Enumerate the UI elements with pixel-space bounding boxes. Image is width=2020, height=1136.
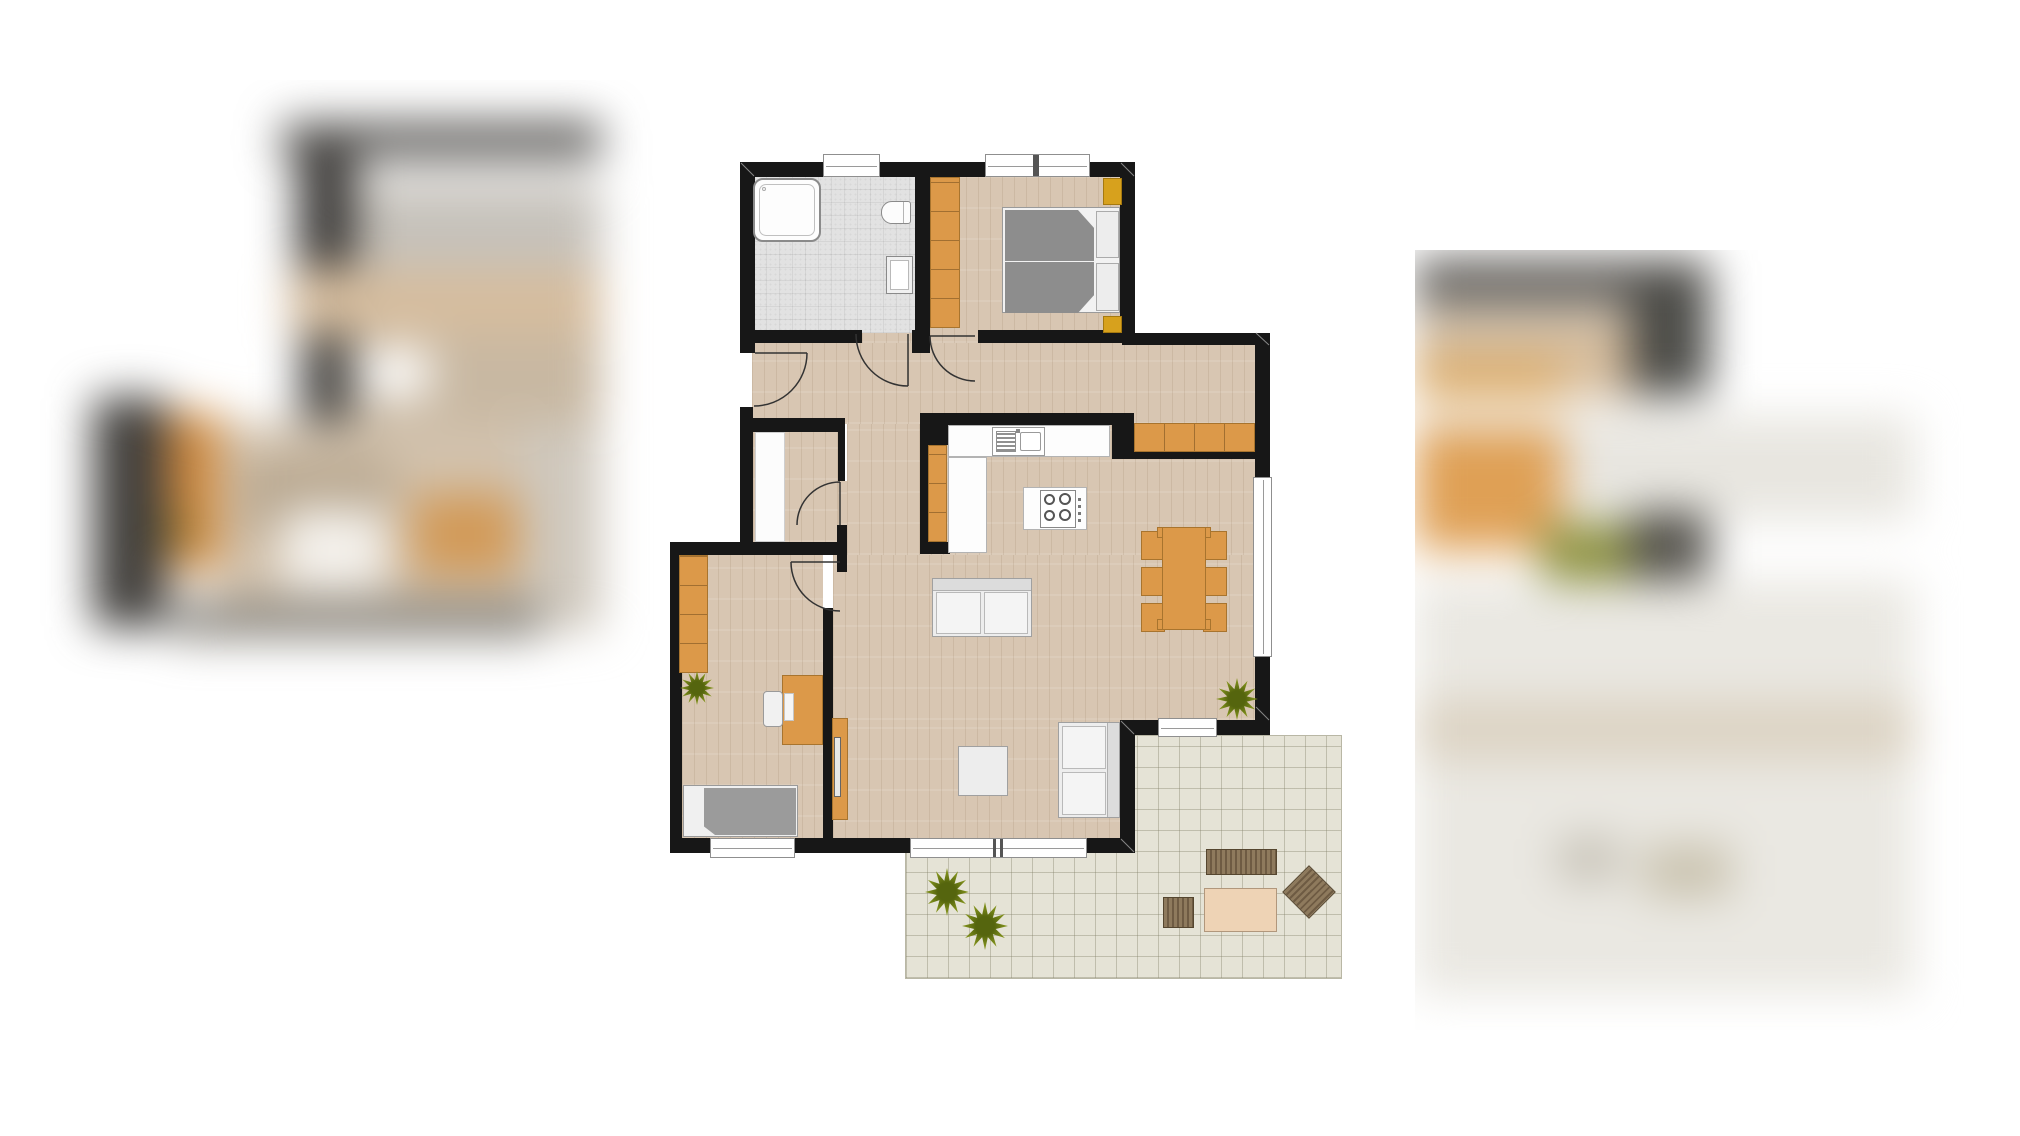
wall-miter [1121, 839, 1134, 852]
bathroom-door [856, 334, 908, 386]
wall-miter [741, 163, 754, 176]
door-swing-overlay [0, 0, 2020, 1136]
screenshot-canvas [0, 0, 2020, 1136]
wall-miter [1256, 707, 1269, 720]
office-door [791, 562, 840, 611]
bedroom-door [930, 336, 975, 381]
entrance-door [754, 353, 807, 406]
wall-miter [1121, 163, 1134, 176]
storage-door [797, 482, 840, 525]
wall-miter [1256, 333, 1269, 345]
floor-plan-image [0, 0, 2020, 1136]
wall-miter [1121, 721, 1134, 734]
